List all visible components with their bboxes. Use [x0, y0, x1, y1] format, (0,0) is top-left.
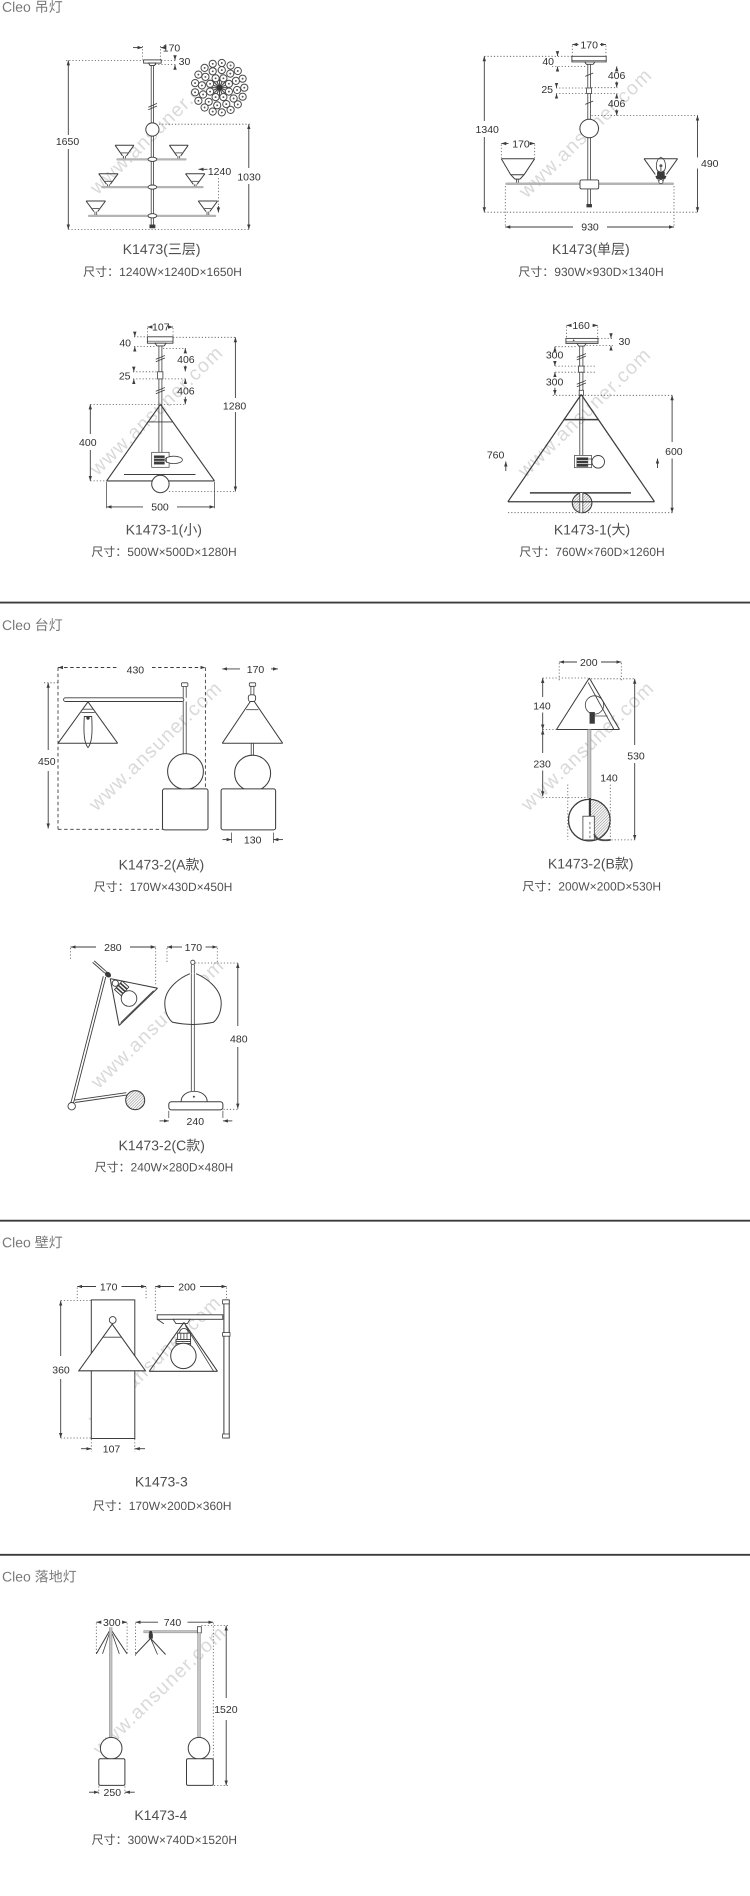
svg-text:230: 230	[533, 759, 551, 771]
svg-text:480: 480	[230, 1033, 248, 1045]
svg-text:140: 140	[533, 701, 551, 713]
svg-text:1520: 1520	[214, 1704, 238, 1716]
svg-text:170: 170	[580, 39, 598, 51]
svg-text:170: 170	[185, 942, 203, 954]
svg-text:760: 760	[487, 450, 505, 462]
svg-text:1030: 1030	[237, 171, 261, 183]
svg-text:170: 170	[247, 664, 265, 676]
svg-text:360: 360	[52, 1365, 70, 1377]
svg-text:200: 200	[178, 1281, 196, 1293]
svg-text:250: 250	[104, 1787, 122, 1799]
svg-text:130: 130	[244, 835, 262, 847]
svg-text:40: 40	[119, 338, 131, 350]
svg-text:107: 107	[152, 322, 170, 334]
svg-text:430: 430	[127, 664, 145, 676]
svg-text:406: 406	[177, 354, 195, 366]
svg-text:300: 300	[546, 350, 564, 362]
svg-text:930: 930	[581, 222, 599, 234]
svg-text:200: 200	[580, 657, 598, 669]
svg-text:400: 400	[79, 437, 97, 449]
svg-text:406: 406	[177, 386, 195, 398]
svg-text:600: 600	[665, 446, 683, 458]
svg-text:107: 107	[103, 1443, 121, 1455]
svg-text:1650: 1650	[56, 136, 80, 148]
svg-text:1240: 1240	[208, 166, 232, 178]
svg-text:300: 300	[103, 1617, 121, 1629]
svg-text:406: 406	[608, 98, 626, 110]
svg-text:140: 140	[600, 773, 618, 785]
svg-text:406: 406	[608, 70, 626, 82]
svg-text:500: 500	[151, 501, 169, 513]
svg-text:450: 450	[38, 756, 56, 768]
svg-text:1340: 1340	[476, 124, 500, 136]
svg-text:K1473-3: K1473-3	[135, 1474, 188, 1490]
svg-text:280: 280	[104, 942, 122, 954]
svg-text:30: 30	[179, 56, 191, 68]
svg-text:530: 530	[627, 751, 645, 763]
svg-text:170: 170	[163, 42, 181, 54]
svg-text:1280: 1280	[223, 400, 247, 412]
svg-text:25: 25	[541, 84, 553, 96]
svg-text:170: 170	[512, 139, 530, 151]
svg-text:740: 740	[164, 1617, 182, 1629]
svg-text:K1473-4: K1473-4	[134, 1807, 187, 1823]
svg-text:240: 240	[187, 1116, 205, 1128]
svg-text:160: 160	[572, 320, 590, 332]
svg-text:30: 30	[619, 336, 631, 348]
svg-text:490: 490	[701, 158, 719, 170]
svg-text:25: 25	[119, 371, 131, 383]
svg-text:300: 300	[546, 376, 564, 388]
svg-text:170: 170	[100, 1281, 118, 1293]
